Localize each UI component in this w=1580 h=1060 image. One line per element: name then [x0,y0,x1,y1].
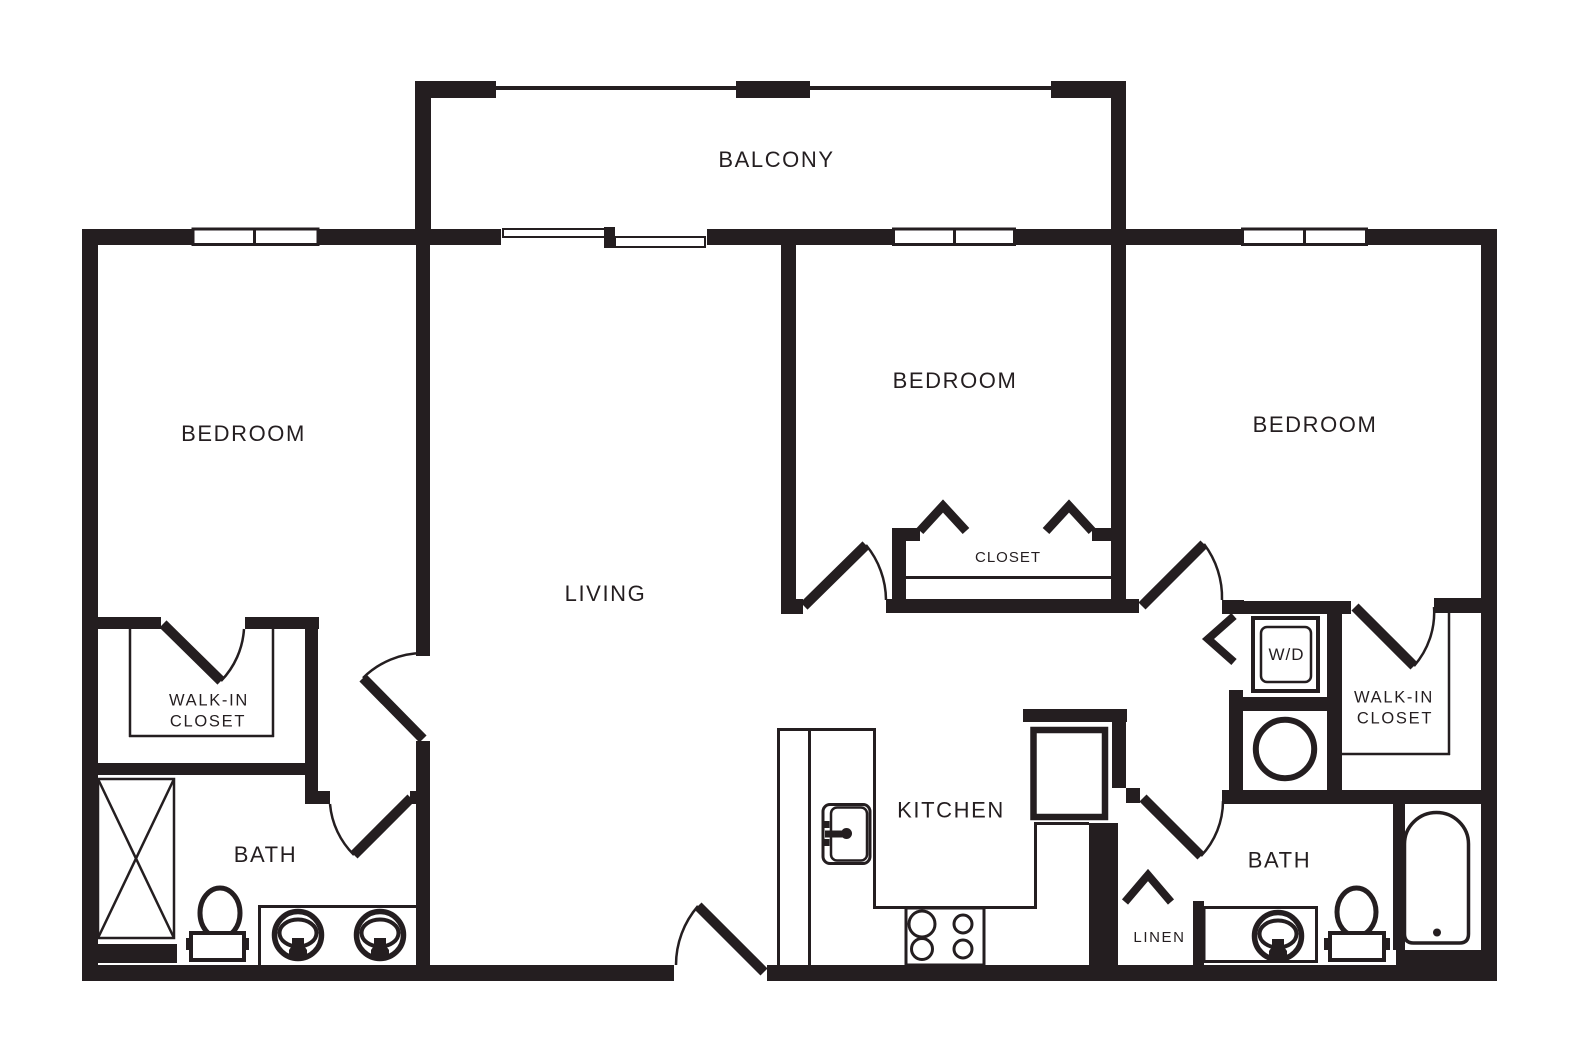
svg-text:BALCONY: BALCONY [718,147,834,172]
svg-text:WALK-IN: WALK-IN [169,692,249,710]
svg-text:CLOSET: CLOSET [975,549,1041,566]
svg-text:BEDROOM: BEDROOM [893,368,1018,393]
svg-text:CLOSET: CLOSET [1357,710,1433,728]
svg-text:WALK-IN: WALK-IN [1354,689,1434,707]
svg-text:LINEN: LINEN [1133,929,1185,946]
svg-text:BEDROOM: BEDROOM [1253,412,1378,437]
svg-text:BATH: BATH [1248,848,1311,873]
svg-text:LIVING: LIVING [565,581,647,606]
svg-text:CLOSET: CLOSET [170,713,246,731]
svg-text:BEDROOM: BEDROOM [181,421,306,446]
svg-text:KITCHEN: KITCHEN [897,798,1005,823]
svg-text:W/D: W/D [1268,645,1304,664]
svg-text:BATH: BATH [234,842,297,867]
